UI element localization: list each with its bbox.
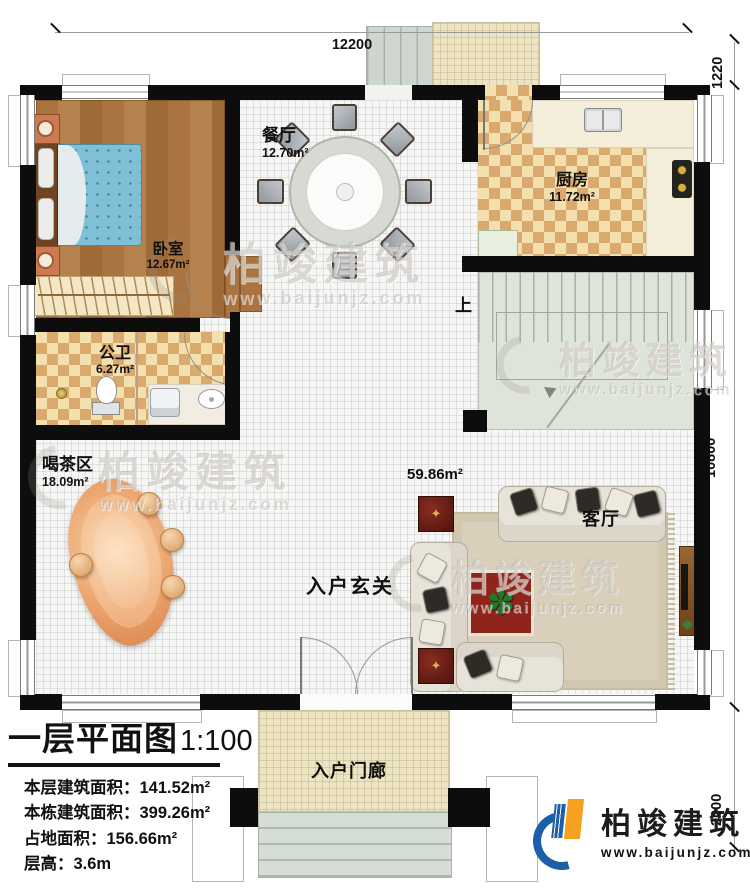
tea-stool <box>69 553 93 577</box>
wall-segment <box>694 162 710 310</box>
wardrobe <box>34 276 174 316</box>
door-leaf <box>411 637 413 694</box>
living-area-value: 59.86m² <box>407 466 463 483</box>
wall-segment <box>694 388 710 650</box>
window <box>20 640 35 695</box>
wall-segment <box>225 332 240 425</box>
washing-machine <box>150 388 180 417</box>
door-leaf <box>300 637 302 694</box>
brand-logo: 柏竣建筑 www.baijunjz.com <box>533 796 750 862</box>
info-value: 399.26m² <box>140 804 211 822</box>
dining-chair <box>257 179 284 204</box>
title-block: 一层平面图 1:100 本层建筑面积：141.52m² 本栋建筑面积：399.2… <box>8 712 253 878</box>
dining-table-center <box>336 183 354 201</box>
wall-segment <box>20 318 200 332</box>
door-leaf <box>483 100 485 150</box>
wall-segment <box>200 694 300 710</box>
console-plant <box>683 620 692 629</box>
window <box>697 95 712 162</box>
brand-url: www.baijunjz.com <box>601 845 750 860</box>
bed-pillow <box>38 198 54 240</box>
window-sill <box>512 710 657 723</box>
bath-sink-drain <box>209 397 214 402</box>
room-area: 12.67m² <box>132 259 204 272</box>
wall-segment <box>20 85 36 95</box>
sofa-pillow <box>422 586 450 614</box>
info-row: 本层建筑面积：141.52m² <box>24 776 253 802</box>
coffee-table-mat: ✽ <box>468 570 534 636</box>
brand-text: 柏竣建筑 www.baijunjz.com <box>601 799 750 860</box>
info-label: 本层建筑面积： <box>24 779 140 797</box>
room-label-living: 客厅 <box>582 509 620 530</box>
dimension-top-label: 12200 <box>322 37 382 53</box>
stove <box>672 160 692 198</box>
nightstand-lamp <box>37 120 54 137</box>
porch-steps <box>258 812 452 878</box>
window-sill <box>710 650 724 697</box>
plan-scale: 1:100 <box>180 725 253 758</box>
info-row: 占地面积：156.66m² <box>24 827 253 853</box>
end-table: ✦ <box>418 496 454 532</box>
window <box>20 95 35 165</box>
room-name: 卧室 <box>132 241 204 259</box>
window <box>62 85 148 99</box>
info-row: 层高：3.6m <box>24 852 253 878</box>
info-value: 156.66m² <box>107 830 178 848</box>
info-label: 本栋建筑面积： <box>24 804 140 822</box>
room-label-entry-porch: 入户门廊 <box>311 761 387 782</box>
dimension-line-right <box>734 42 735 854</box>
nightstand-lamp <box>37 252 54 269</box>
info-row: 本栋建筑面积：399.26m² <box>24 801 253 827</box>
wall-segment <box>20 694 62 710</box>
tea-stool <box>161 575 185 599</box>
window <box>697 310 712 388</box>
porch-pier <box>448 788 490 827</box>
dining-chair <box>332 104 357 131</box>
compass-icon: ✦ <box>431 658 442 674</box>
room-label-bathroom: 公卫 6.27m² <box>80 345 150 377</box>
window <box>20 285 35 335</box>
room-area: 12.70m² <box>262 146 309 160</box>
stair-rail <box>496 312 668 380</box>
title-info-rows: 本层建筑面积：141.52m² 本栋建筑面积：399.26m² 占地面积：156… <box>24 776 253 878</box>
tv-screen <box>681 564 688 610</box>
plan-title-row: 一层平面图 1:100 <box>8 712 253 760</box>
room-label-tea-area: 喝茶区 18.09m² <box>42 455 93 489</box>
window <box>512 695 655 710</box>
kitchen-cabinet <box>478 230 518 257</box>
wall-segment <box>462 256 710 272</box>
wall-segment <box>230 312 240 332</box>
tea-stool <box>137 492 161 516</box>
room-name: 餐厅 <box>262 126 309 146</box>
info-value: 3.6m <box>74 855 112 873</box>
compass-icon: ✦ <box>431 506 442 522</box>
room-area: 6.27m² <box>80 363 150 377</box>
info-label: 占地面积： <box>24 830 107 848</box>
info-label: 层高： <box>24 855 74 873</box>
porch-column <box>486 776 538 882</box>
wall-segment <box>412 694 512 710</box>
window <box>697 650 712 695</box>
room-label-bedroom: 卧室 12.67m² <box>132 241 204 272</box>
brand-name: 柏竣建筑 <box>601 799 750 843</box>
rug-fringe <box>668 512 675 690</box>
back-door-threshold <box>365 85 412 100</box>
wall-segment <box>20 425 240 440</box>
kitchen-door-threshold <box>485 85 532 100</box>
wall-segment <box>412 85 485 100</box>
room-label-foyer: 入户玄关 <box>306 576 394 599</box>
plant-icon: ✽ <box>487 583 516 623</box>
room-area: 11.72m² <box>530 190 614 204</box>
info-value: 141.52m² <box>140 779 211 797</box>
wall-segment <box>225 100 240 255</box>
bed-pillow <box>38 148 54 188</box>
wall-segment <box>20 335 36 640</box>
room-label-dining: 餐厅 12.70m² <box>262 126 309 160</box>
toilet-bowl <box>96 376 117 404</box>
sofa-pillow <box>496 654 524 682</box>
tea-stool <box>160 528 184 552</box>
wall-segment <box>148 85 365 100</box>
dining-chair <box>332 252 357 279</box>
brand-logo-icon <box>533 796 593 862</box>
entry-door-threshold <box>300 694 412 710</box>
bedroom-door-nook <box>240 256 262 312</box>
sofa-pillow <box>418 618 446 646</box>
room-name: 厨房 <box>530 172 614 190</box>
window-sill <box>710 310 724 390</box>
room-area: 18.09m² <box>42 475 93 489</box>
plan-title: 一层平面图 <box>8 712 178 760</box>
window <box>62 695 200 710</box>
window <box>560 85 664 99</box>
window-sill <box>710 95 724 164</box>
wall-segment <box>20 165 36 285</box>
stair-column <box>463 410 487 432</box>
wardrobe-rod <box>38 294 170 296</box>
wall-segment <box>694 85 710 95</box>
wall-segment <box>532 85 560 100</box>
back-steps <box>366 26 434 89</box>
end-table: ✦ <box>418 648 454 684</box>
room-name: 公卫 <box>80 345 150 363</box>
dining-chair <box>405 179 432 204</box>
room-name: 喝茶区 <box>42 455 93 475</box>
toilet-paper-holder <box>56 388 67 399</box>
stairs-up-label: 上 <box>455 296 472 316</box>
title-underline <box>8 763 220 767</box>
dimension-right-top-label: 1220 <box>710 43 726 89</box>
dimension-line-top <box>55 32 689 33</box>
room-label-kitchen: 厨房 11.72m² <box>530 172 614 205</box>
floor-plan-canvas: 12200 1220 10800 2000 <box>0 0 750 888</box>
wall-segment <box>655 694 710 710</box>
wall-segment <box>462 100 478 162</box>
kitchen-sink-divider <box>602 110 604 130</box>
